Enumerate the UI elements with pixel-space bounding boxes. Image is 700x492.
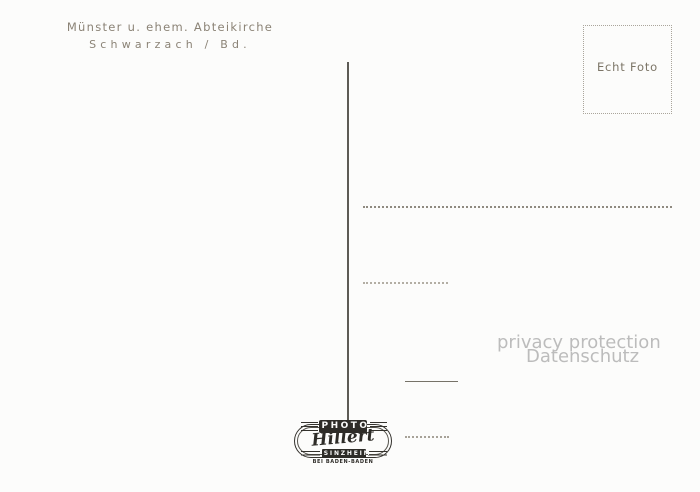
logo-city-banner: SINZHEIM [322,449,366,458]
address-line-1 [363,206,672,208]
stamp-box-label: Echt Foto [597,60,658,74]
address-line-4 [405,436,449,438]
logo-subtitle: BEI BADEN-BADEN [293,459,393,465]
publisher-logo: PHOTO Hillert SINZHEIM BEI BADEN-BADEN [293,415,395,467]
center-divider-line [347,62,349,420]
caption-line-2: Schwarzach / Bd. [58,38,282,51]
stamp-box: Echt Foto [583,25,672,114]
watermark-line-2: Datenschutz [526,346,639,367]
postcard-back: { "postcard": { "caption": { "line1": "M… [0,0,700,492]
photo-caption: Münster u. ehem. Abteikirche Schwarzach … [58,20,282,51]
address-line-3 [405,381,458,382]
logo-city-flank-left [301,451,320,456]
caption-line-1: Münster u. ehem. Abteikirche [58,20,282,34]
address-line-2 [363,282,448,284]
